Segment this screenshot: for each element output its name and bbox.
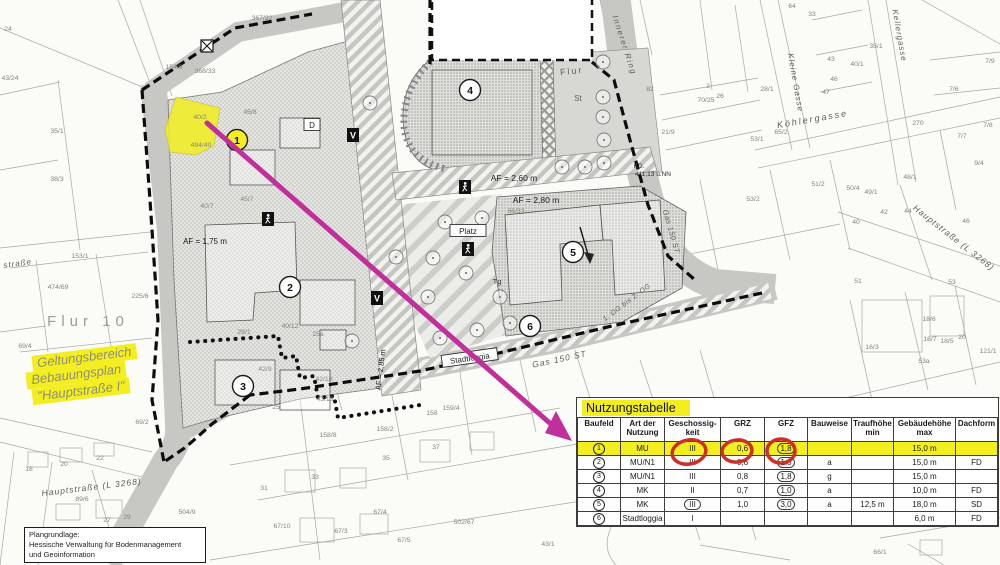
parcel-label: 9/4 (974, 160, 984, 167)
column-header: Gebäudehöhe max (894, 418, 956, 442)
tree-dot (432, 257, 434, 259)
parcel-label: 2 (706, 83, 710, 90)
plangrundlage-box: Plangrundlage: Hessische Verwaltung für … (24, 527, 206, 563)
table-cell (956, 442, 998, 456)
table-cell: 1,0 (721, 498, 765, 512)
parcel-label: 158/8 (319, 432, 336, 439)
table-row: 5MKIII1,03,0a12,5 m18,0 mSD (578, 498, 998, 512)
parcel-label: 31 (260, 485, 268, 492)
v-glyph: V (350, 130, 356, 140)
traffic-sign-icon: V (347, 128, 359, 142)
parcel-label: 50/4 (846, 185, 859, 192)
parcel-label: 42 (880, 209, 888, 216)
tree-dot (395, 256, 397, 258)
tree-icon (597, 133, 611, 147)
baufeld-badge-3: 3 (233, 376, 254, 397)
parcel-label: 44 (904, 208, 912, 215)
parcel-label: 51 (854, 278, 862, 285)
table-cell: I (665, 512, 721, 526)
parcel-label: 42/9 (258, 366, 271, 373)
tree-dot (584, 166, 586, 168)
parcel-label: 367/32 (252, 15, 273, 22)
parcel-label: 225/6 (131, 293, 148, 300)
parcel-label: 40/2 (193, 114, 206, 121)
table-cell: g (808, 470, 852, 484)
parcel-label: 159/4 (442, 405, 459, 412)
tree-dot (603, 162, 605, 164)
column-header: GFZ (765, 418, 808, 442)
circled-value: 1,8 (777, 457, 794, 468)
parcel-label: 474/69 (48, 284, 69, 291)
existing-building (432, 0, 592, 60)
parcel-label: 46 (830, 76, 838, 83)
tree-icon (345, 334, 359, 348)
parcel-label: 47 (822, 89, 830, 96)
circled-value: 1,0 (777, 485, 794, 496)
table-cell (721, 512, 765, 526)
table-row: 6StadtloggiaI6,0 mFD (578, 512, 998, 526)
plangrundlage-line: Plangrundlage: (29, 530, 201, 540)
table-cell: MK (621, 498, 665, 512)
parcel-label: 45/8 (243, 109, 256, 116)
crossing-icon (201, 40, 213, 52)
area-label: 411,13 ü.NN (635, 171, 671, 178)
parcel-label: 46 (962, 218, 970, 225)
table-cell (765, 512, 808, 526)
parcel-label: 43 (827, 56, 835, 63)
nutzungstabelle: BaufeldArt der NutzungGeschossig- keitGR… (577, 417, 998, 526)
tree-icon (493, 290, 507, 304)
circled-value: 3,0 (777, 499, 794, 510)
area-label: Flur 10 (47, 313, 129, 330)
circled-value: 1,8 (777, 471, 794, 482)
tree-dot (602, 96, 604, 98)
parcel-label: 48/1 (903, 174, 916, 181)
table-cell: 3,0 (765, 498, 808, 512)
parcel-label: 33 (311, 474, 319, 481)
table-cell (852, 442, 894, 456)
column-header: Art der Nutzung (621, 418, 665, 442)
boxed-label-text: D (309, 121, 315, 130)
parcel-label: 82 (646, 86, 654, 93)
tree-icon (596, 90, 610, 104)
table-cell: 1 (578, 442, 621, 456)
parcel-label: 67/5 (397, 537, 410, 544)
parcel-label: 69/2 (135, 419, 148, 426)
v-glyph: V (374, 293, 380, 303)
tree-icon (433, 331, 447, 345)
tree-icon (578, 160, 592, 174)
tree-icon (389, 250, 403, 264)
tree-icon (503, 316, 517, 330)
table-cell: 0,6 (721, 456, 765, 470)
table-cell (852, 456, 894, 470)
parcel-label: 29/1 (237, 329, 250, 336)
table-cell (852, 512, 894, 526)
parcel-label: 18/5 (940, 338, 953, 345)
area-label: AF = 2,60 m (491, 173, 538, 183)
table-cell: a (808, 484, 852, 498)
parcel-label: 7/8 (983, 122, 993, 129)
area-label: AF = 2,80 m (513, 195, 560, 205)
tree-icon (426, 251, 440, 265)
parcel-label: 40 (852, 219, 860, 226)
nutzungstabelle-panel: Nutzungstabelle BaufeldArt der NutzungGe… (576, 397, 999, 527)
tree-icon (363, 96, 377, 110)
tree-icon (555, 160, 569, 174)
table-cell: SD (956, 498, 998, 512)
parcel-label: 67/10 (273, 523, 290, 530)
table-cell (808, 442, 852, 456)
parcel-label: 158/2 (376, 426, 393, 433)
parcel-label: 153/1 (71, 253, 88, 260)
table-cell (852, 484, 894, 498)
tree-dot (427, 296, 429, 298)
table-cell: 1,8 (765, 470, 808, 484)
table-cell (808, 512, 852, 526)
table-cell: 1,8 (765, 456, 808, 470)
area-label: Tg (493, 277, 502, 286)
column-header: Traufhöhe min (852, 418, 894, 442)
badge-number: 3 (240, 381, 246, 393)
baufeld-badge-2: 2 (280, 277, 301, 298)
parcel-label: 18/6 (922, 316, 935, 323)
parcel-label: 53 (948, 279, 956, 286)
parcel-label: 69/4 (18, 343, 31, 350)
column-header: Baufeld (578, 418, 621, 442)
table-cell: 0,8 (721, 470, 765, 484)
parcel-label: 49/1 (864, 189, 877, 196)
parcel-label: 20 (60, 461, 68, 468)
parcel-label: 66/1 (873, 549, 886, 556)
column-header: Geschossig- keit (665, 418, 721, 442)
table-cell: FD (956, 512, 998, 526)
parcel-label: 65/2 (774, 129, 787, 136)
tree-icon (470, 323, 484, 337)
badge-number: 6 (527, 321, 533, 333)
pedestrian-icon (459, 180, 471, 194)
table-cell: II (665, 484, 721, 498)
parcel-label: 27 (103, 517, 111, 524)
parcel-label: 7/6 (949, 86, 959, 93)
table-cell: 0,7 (721, 484, 765, 498)
parcel-label: 35/1 (869, 43, 882, 50)
table-cell: 3 (578, 470, 621, 484)
plangrundlage-line: Hessische Verwaltung für Bodenmanagement (29, 540, 201, 550)
parcel-label: 70/25 (697, 97, 714, 104)
traffic-sign-icon: V (371, 291, 383, 305)
parcel-label: 25 (272, 404, 280, 411)
tree-dot (499, 296, 501, 298)
tree-icon (596, 55, 610, 69)
boxed-label-text: Platz (459, 227, 477, 236)
table-cell: MK (621, 484, 665, 498)
tree-dot (351, 340, 353, 342)
parcel-label: 16/3 (865, 344, 878, 351)
table-cell: a (808, 456, 852, 470)
parcel-label: 33 (808, 11, 816, 18)
table-cell: MU (621, 442, 665, 456)
baufeld-badge-4: 4 (460, 80, 481, 101)
table-cell: 18,0 m (894, 498, 956, 512)
parcel-label: 502/67 (454, 519, 475, 526)
parcel-label: 21/9 (661, 129, 674, 136)
table-cell: 4 (578, 484, 621, 498)
tree-dot (369, 102, 371, 104)
baufeld-number: 3 (593, 471, 605, 483)
parcel-label: 43/1 (541, 541, 554, 548)
table-cell: 0,6 (721, 442, 765, 456)
table-row: 2MU/N1III0,61,8a15,0 mFD (578, 456, 998, 470)
parcel-label: 494/40 (191, 142, 212, 149)
table-row: 1MUIII0,61,815,0 m (578, 442, 998, 456)
parcel-label: 51/2 (811, 181, 824, 188)
parcel-label: 38/3 (50, 176, 63, 183)
table-cell: 10,0 m (894, 484, 956, 498)
tree-dot (481, 217, 483, 219)
baufeld-number: 2 (593, 457, 605, 469)
badge-number: 5 (570, 247, 576, 259)
parcel-label: 35 (382, 455, 390, 462)
table-cell: III (665, 442, 721, 456)
parcel-label: 18/7 (923, 336, 936, 343)
parcel-label: 368/33 (195, 68, 216, 75)
walker-head (267, 214, 270, 217)
parcel-label: 67/3 (334, 528, 347, 535)
boxed-label: Platz (450, 225, 486, 237)
parcel-label: 64 (788, 3, 796, 10)
plangrundlage-line: und Geoinformation (29, 550, 201, 560)
table-cell (852, 470, 894, 484)
walker-head (464, 182, 467, 185)
badge-number: 2 (287, 282, 293, 294)
tree-icon (596, 110, 610, 124)
badge-number: 4 (467, 85, 473, 97)
parcel-label: 7/7 (957, 133, 967, 140)
table-cell: 6,0 m (894, 512, 956, 526)
table-cell: FD (956, 484, 998, 498)
table-cell: 2 (578, 456, 621, 470)
parcel-label: 45/7 (240, 196, 253, 203)
parcel-label: 121/1 (979, 348, 996, 355)
baufeld-number: 6 (593, 513, 605, 525)
tree-icon (421, 290, 435, 304)
parcel-label: 89/6 (75, 496, 88, 503)
parcel-label: 504/9 (178, 509, 195, 516)
nutzungstabelle-title-row: Nutzungstabelle (582, 401, 998, 415)
area-label: KD. (634, 163, 645, 170)
table-row: 4MKII0,71,0a10,0 mFD (578, 484, 998, 498)
parcel-label: 53/1 (750, 136, 763, 143)
parcel-label: 43/13 (316, 396, 333, 403)
parcel-label: 22 (96, 455, 104, 462)
crosshatch-strip (540, 58, 556, 172)
tree-dot (509, 322, 511, 324)
table-cell: FD (956, 456, 998, 470)
walker-head (467, 244, 470, 247)
table-cell: 15,0 m (894, 456, 956, 470)
parcel-label: 42/10 (315, 376, 332, 383)
baufeld-badge-6: 6 (520, 316, 541, 337)
parcel-label: 24 (4, 26, 12, 33)
table-cell: MU/N1 (621, 470, 665, 484)
parcel-label: 43/24 (1, 75, 18, 82)
pedestrian-icon (262, 212, 274, 226)
tree-dot (476, 329, 478, 331)
table-cell: Stadtloggia (621, 512, 665, 526)
parcel-label: 67/4 (373, 509, 386, 516)
table-cell: III (665, 470, 721, 484)
tree-icon (597, 156, 611, 170)
baufeld-badge-5: 5 (563, 242, 584, 263)
column-header: Dachform (956, 418, 998, 442)
tree-icon (459, 266, 473, 280)
baufeld-number: 5 (593, 499, 605, 511)
column-header: Bauweise (808, 418, 852, 442)
tree-dot (444, 221, 446, 223)
parcel-label: 20 (958, 334, 966, 341)
table-row: 3MU/N1III0,81,8g15,0 m (578, 470, 998, 484)
parcel-label: 25a (312, 331, 324, 338)
tree-dot (602, 61, 604, 63)
table-cell: 6 (578, 512, 621, 526)
parcel-label: 35/1 (50, 128, 63, 135)
tree-dot (603, 139, 605, 141)
badge-number: 1 (234, 135, 240, 147)
tree-dot (561, 166, 563, 168)
table-cell: III (665, 456, 721, 470)
table-cell: MU/N1 (621, 456, 665, 470)
table-cell: III (665, 498, 721, 512)
parcel-label: 40/12 (281, 323, 298, 330)
parcel-label: 18 (25, 466, 33, 473)
parcel-label: 7/9 (985, 58, 995, 65)
parcel-label: 28/1 (760, 86, 773, 93)
parcel-label: 53/2 (746, 196, 759, 203)
table-cell: a (808, 498, 852, 512)
area-label: AF = 1,75 m (183, 237, 227, 246)
baufeld-badge-1: 1 (227, 130, 248, 151)
baufeld-number: 1 (593, 443, 605, 455)
parcel-label: 26 (716, 93, 724, 100)
table-cell: 1,8 (765, 442, 808, 456)
circled-value: III (684, 499, 701, 510)
boxed-label: D (304, 119, 320, 131)
tree-icon (475, 211, 489, 225)
table-cell: 12,5 m (852, 498, 894, 512)
table-cell: 1,0 (765, 484, 808, 498)
baufeld-number: 4 (593, 485, 605, 497)
area-label: St (574, 94, 582, 103)
parcel-label: 40/7 (200, 203, 213, 210)
pedestrian-icon (462, 242, 474, 256)
tree-dot (439, 337, 441, 339)
parcel-label: 158 (426, 410, 438, 417)
tree-dot (465, 272, 467, 274)
parcel-label: 29 (123, 514, 131, 521)
parcel-label: 66/33 (507, 208, 524, 215)
nutzungstabelle-title: Nutzungstabelle (582, 400, 690, 416)
parcel-label: 154/9 (165, 64, 182, 71)
tree-dot (602, 116, 604, 118)
table-cell: 15,0 m (894, 442, 956, 456)
column-header: GRZ (721, 418, 765, 442)
parcel-label: 37 (432, 444, 440, 451)
table-cell: 5 (578, 498, 621, 512)
parcel-label: 40/1 (850, 61, 863, 68)
table-cell (956, 470, 998, 484)
circled-value: 1,8 (777, 443, 794, 454)
table-cell: 15,0 m (894, 470, 956, 484)
parcel-label: 270 (912, 120, 924, 127)
parcel-label: 53a (918, 358, 930, 365)
